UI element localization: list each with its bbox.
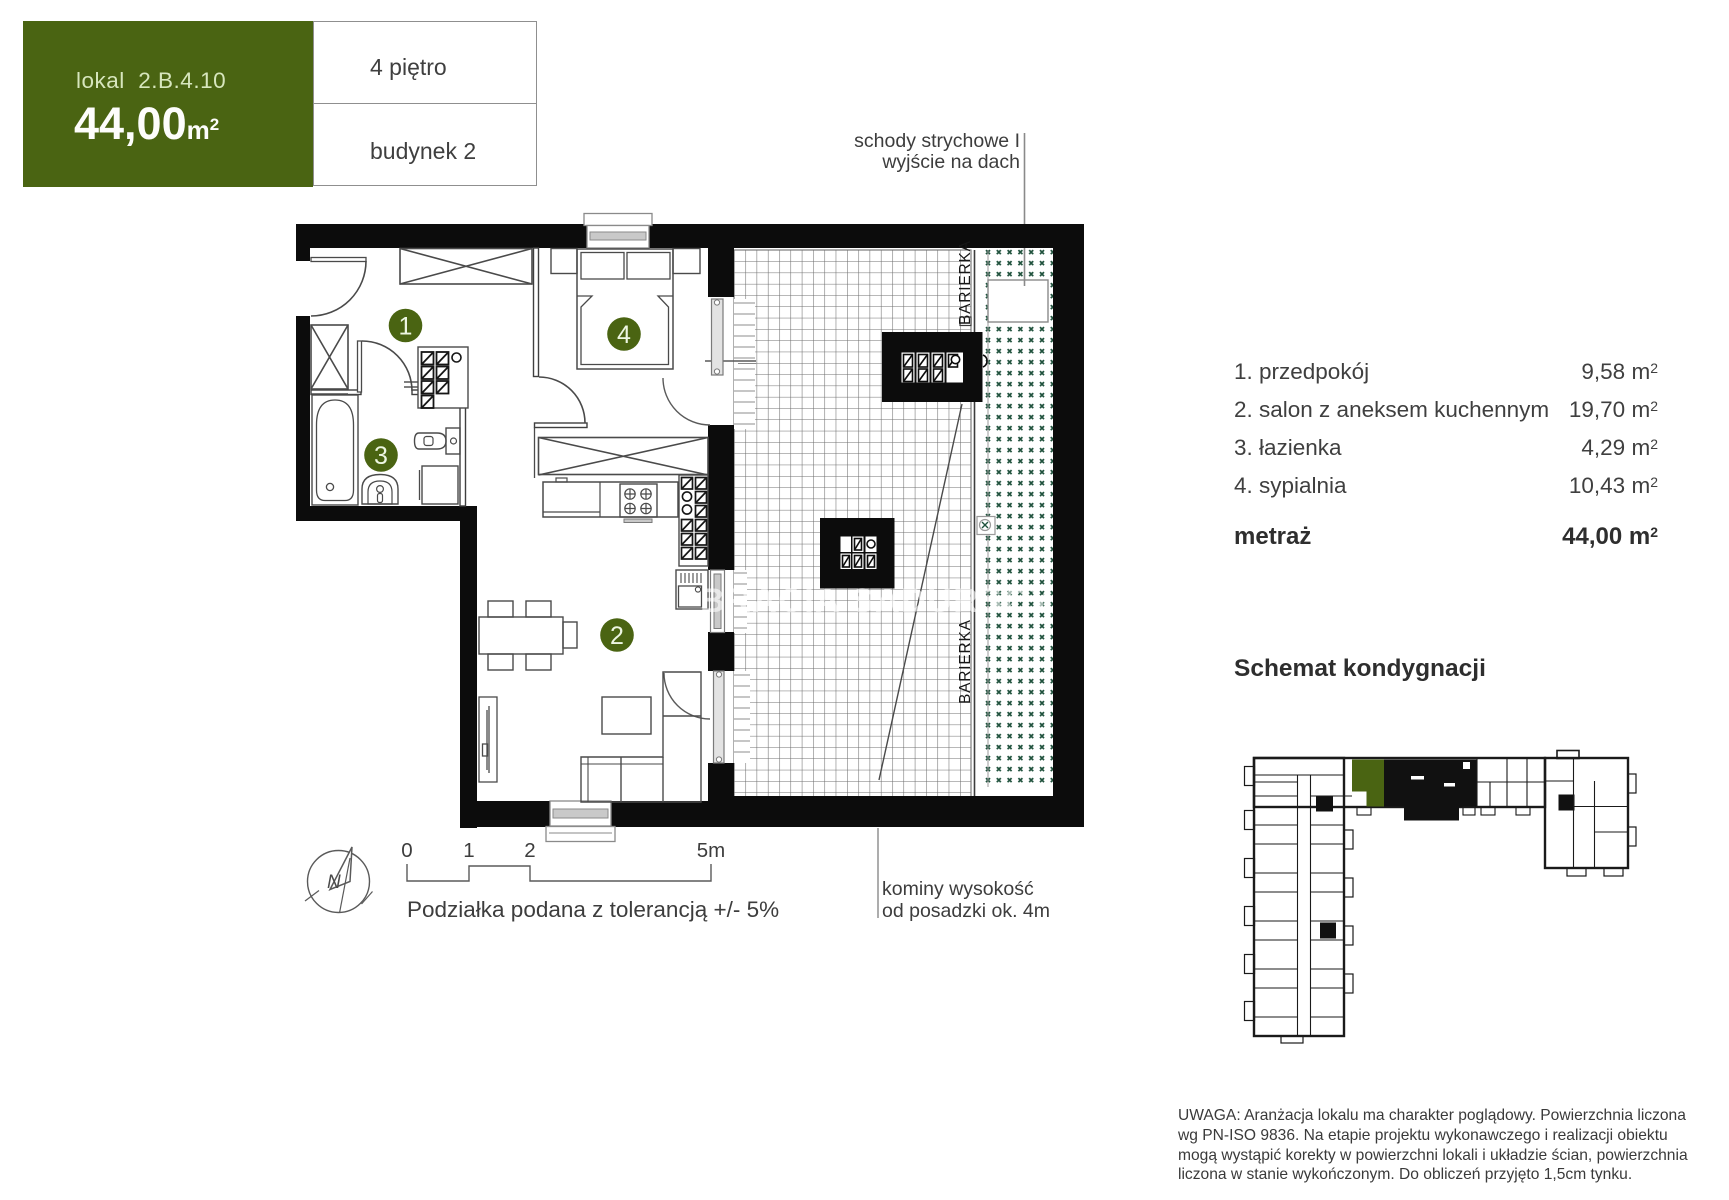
svg-text:5m: 5m [697, 839, 725, 862]
svg-text:1: 1 [463, 839, 474, 862]
svg-text:wyjście na dach: wyjście na dach [881, 151, 1020, 173]
svg-text:schody strychowe I: schody strychowe I [854, 130, 1020, 152]
svg-text:BARIERKA: BARIERKA [957, 619, 974, 704]
svg-text:N: N [327, 872, 341, 893]
svg-text:4: 4 [617, 321, 631, 349]
svg-text:1: 1 [399, 313, 413, 341]
svg-text:BARIERKA: BARIERKA [957, 240, 974, 325]
svg-text:BRACIA SADURSCY: BRACIA SADURSCY [700, 582, 1054, 620]
svg-text:2: 2 [524, 839, 535, 862]
svg-text:0: 0 [401, 839, 412, 862]
svg-text:Podziałka podana z tolerancją: Podziałka podana z tolerancją +/- 5% [407, 897, 779, 922]
svg-text:2: 2 [610, 622, 624, 650]
svg-text:3: 3 [374, 442, 388, 470]
svg-text:od posadzki ok. 4m: od posadzki ok. 4m [882, 900, 1050, 922]
svg-text:kominy wysokość: kominy wysokość [882, 878, 1034, 900]
